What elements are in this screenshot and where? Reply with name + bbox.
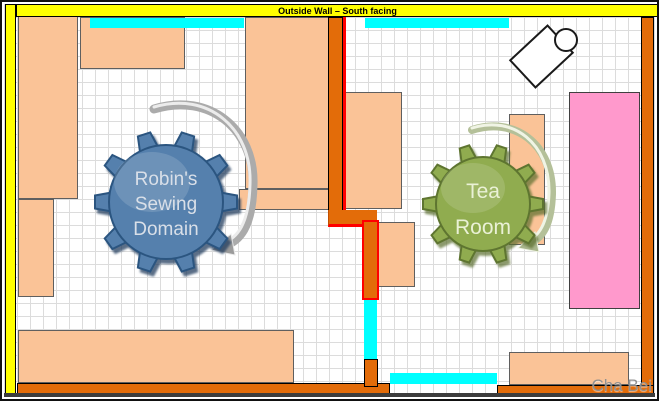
gears-and-arrows-layer: Robin's Sewing Domain Tea Room xyxy=(2,2,659,401)
sewing-gear-icon: Robin's Sewing Domain xyxy=(95,131,237,273)
sewing-gear-label-line3: Domain xyxy=(133,219,198,240)
sewing-gear-label-line2: Sewing xyxy=(135,194,197,215)
tea-gear-label-line2: Room xyxy=(455,216,511,239)
tea-gear-label-line1: Tea xyxy=(466,180,500,203)
floor-plan-canvas: Outside Wall – South facing xyxy=(0,0,659,401)
sewing-gear-label-line1: Robin's xyxy=(135,169,198,190)
watermark-text: Cha Bei xyxy=(592,376,652,396)
